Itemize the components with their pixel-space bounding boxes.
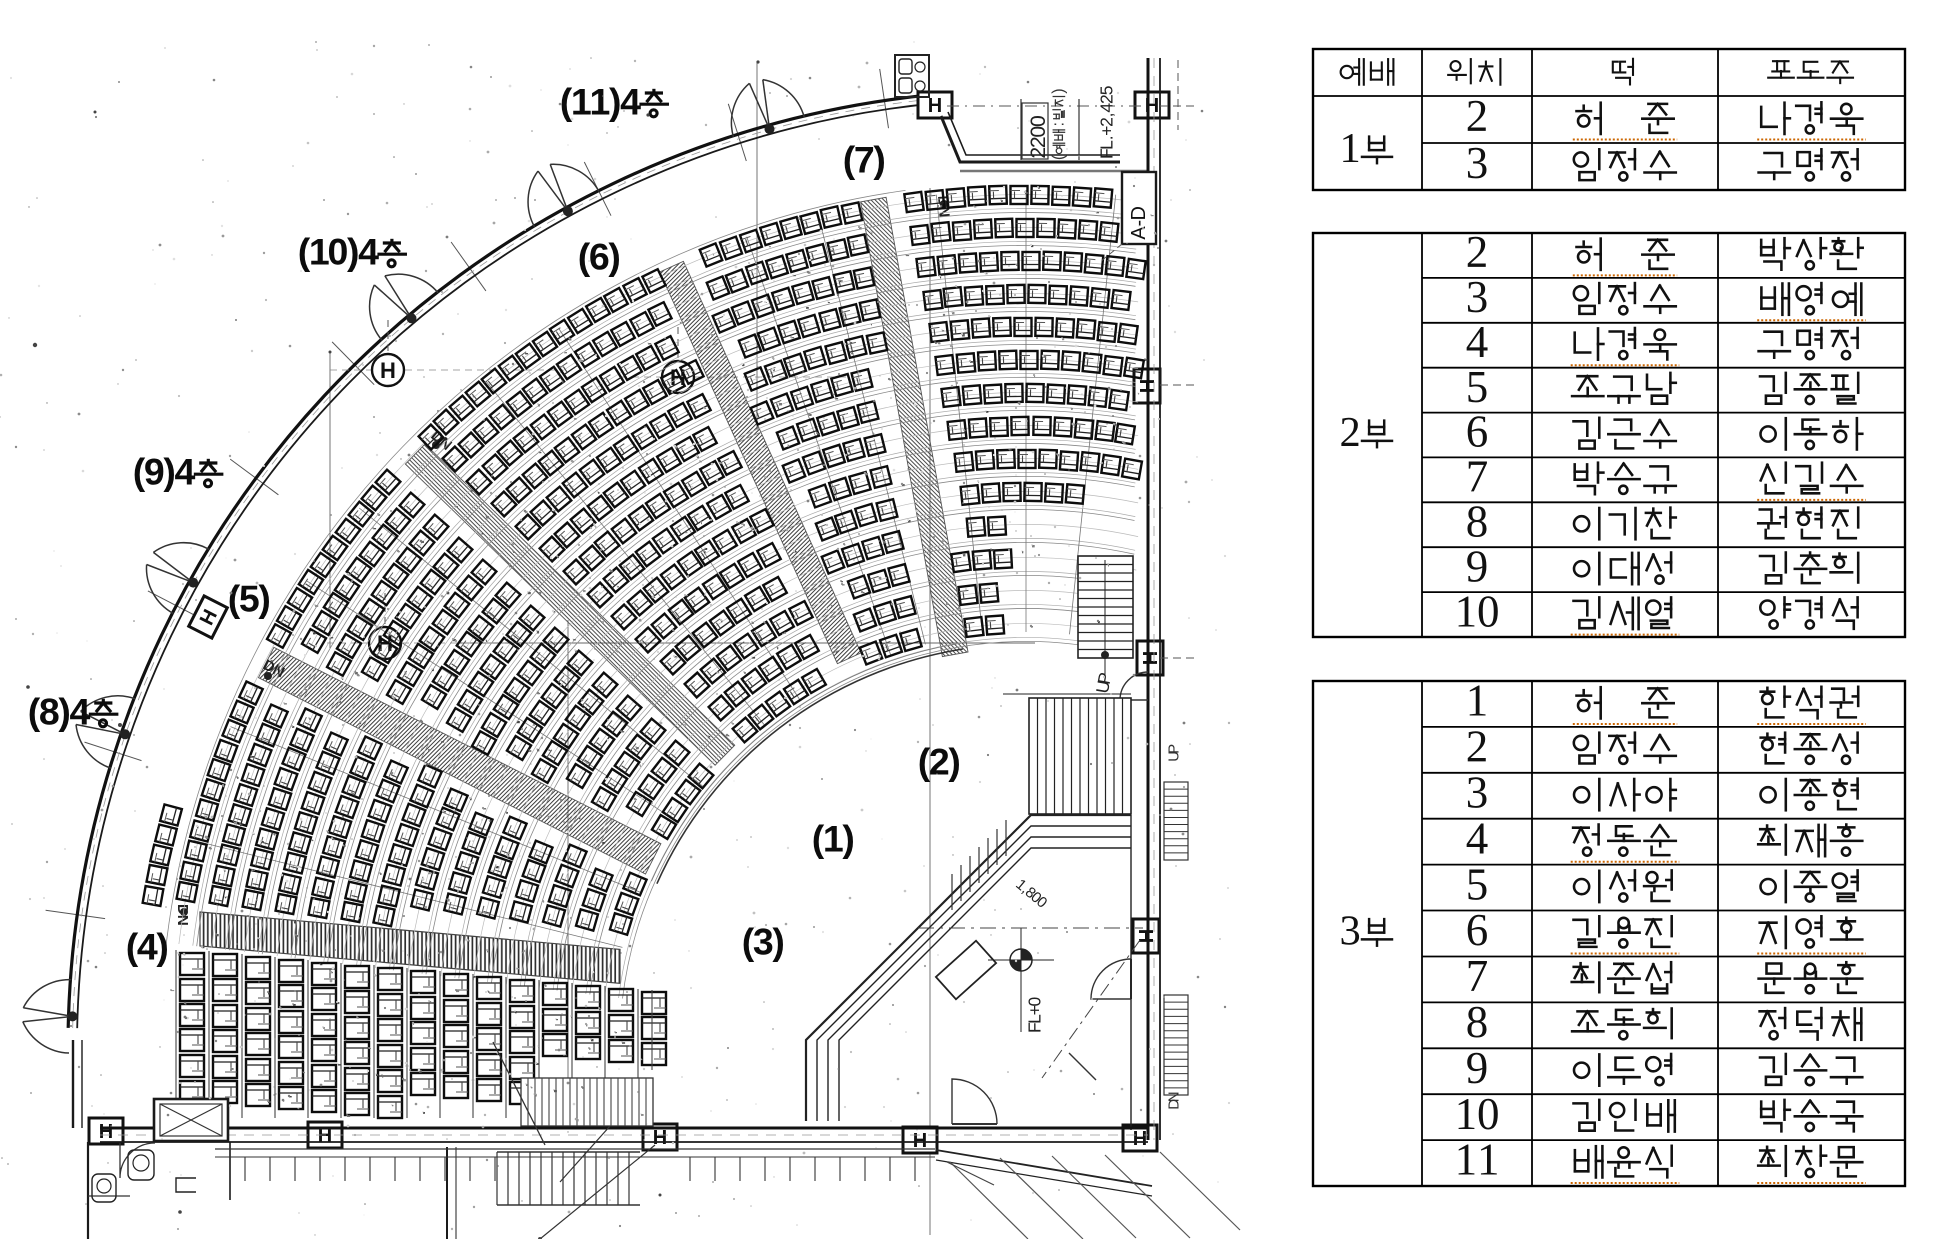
svg-text:3: 3	[1466, 138, 1489, 188]
svg-text:): )	[842, 817, 855, 859]
svg-text:3: 3	[753, 920, 774, 962]
svg-text:1: 1	[589, 80, 610, 122]
svg-text:0: 0	[1477, 586, 1500, 636]
svg-text:D: D	[1128, 206, 1150, 220]
svg-text:): )	[1049, 88, 1067, 93]
svg-text:1: 1	[1477, 1135, 1500, 1185]
svg-text:5: 5	[1466, 859, 1489, 909]
svg-text:6: 6	[1466, 407, 1489, 457]
svg-text:9: 9	[1466, 541, 1489, 591]
svg-text:5: 5	[1466, 362, 1489, 412]
svg-text:2: 2	[1339, 409, 1360, 456]
svg-text:2: 2	[1096, 117, 1116, 127]
svg-text:H: H	[1134, 929, 1156, 943]
svg-text:0: 0	[1477, 1089, 1500, 1139]
svg-text:4: 4	[69, 690, 90, 732]
svg-text:): )	[156, 925, 169, 967]
svg-text:1: 1	[823, 817, 844, 859]
svg-text:): )	[772, 920, 785, 962]
svg-text:7: 7	[1466, 452, 1489, 502]
svg-text:1: 1	[1455, 1089, 1478, 1139]
svg-text:3: 3	[1466, 768, 1489, 818]
svg-text:H: H	[1133, 1128, 1147, 1150]
svg-text::: :	[1049, 122, 1067, 127]
svg-text:6: 6	[1466, 905, 1489, 955]
svg-text:): )	[873, 138, 886, 180]
svg-text:4: 4	[358, 230, 379, 272]
svg-text:H: H	[928, 95, 942, 117]
svg-text:2: 2	[1466, 91, 1489, 141]
svg-text:1: 1	[1466, 676, 1489, 726]
svg-text:8: 8	[1466, 497, 1489, 547]
svg-text:4: 4	[1466, 317, 1489, 367]
svg-text:2: 2	[1466, 227, 1489, 277]
svg-text:4: 4	[620, 80, 641, 122]
svg-text:1: 1	[1339, 125, 1360, 172]
svg-text:(: (	[1049, 154, 1067, 160]
svg-text:0: 0	[327, 230, 348, 272]
svg-text:3: 3	[1466, 272, 1489, 322]
svg-text:4: 4	[137, 925, 158, 967]
svg-text:7: 7	[1466, 951, 1489, 1001]
svg-text:): )	[608, 235, 621, 277]
svg-text:0: 0	[1024, 996, 1044, 1006]
svg-text:1: 1	[1455, 586, 1478, 636]
svg-text:6: 6	[589, 235, 610, 277]
svg-text:8: 8	[1466, 997, 1489, 1047]
svg-text:9: 9	[144, 450, 165, 492]
svg-text:H: H	[99, 1121, 113, 1143]
svg-text:0: 0	[1027, 115, 1050, 127]
svg-text:L: L	[1096, 140, 1116, 150]
svg-text:2: 2	[929, 740, 950, 782]
svg-text:1: 1	[1455, 1135, 1478, 1185]
svg-text:N: N	[1166, 1091, 1183, 1102]
svg-text:): )	[258, 577, 271, 619]
svg-text:4: 4	[1466, 813, 1489, 863]
svg-text:H: H	[380, 358, 396, 383]
svg-text:2: 2	[1466, 722, 1489, 772]
svg-text:4: 4	[174, 450, 195, 492]
svg-text:7: 7	[854, 138, 875, 180]
svg-text:P: P	[1166, 744, 1183, 754]
svg-text:8: 8	[39, 690, 60, 732]
svg-text:9: 9	[1466, 1043, 1489, 1093]
svg-text:): )	[948, 740, 961, 782]
svg-text:5: 5	[1096, 86, 1116, 96]
svg-text:3: 3	[1339, 907, 1360, 954]
svg-text:A: A	[1128, 226, 1150, 240]
